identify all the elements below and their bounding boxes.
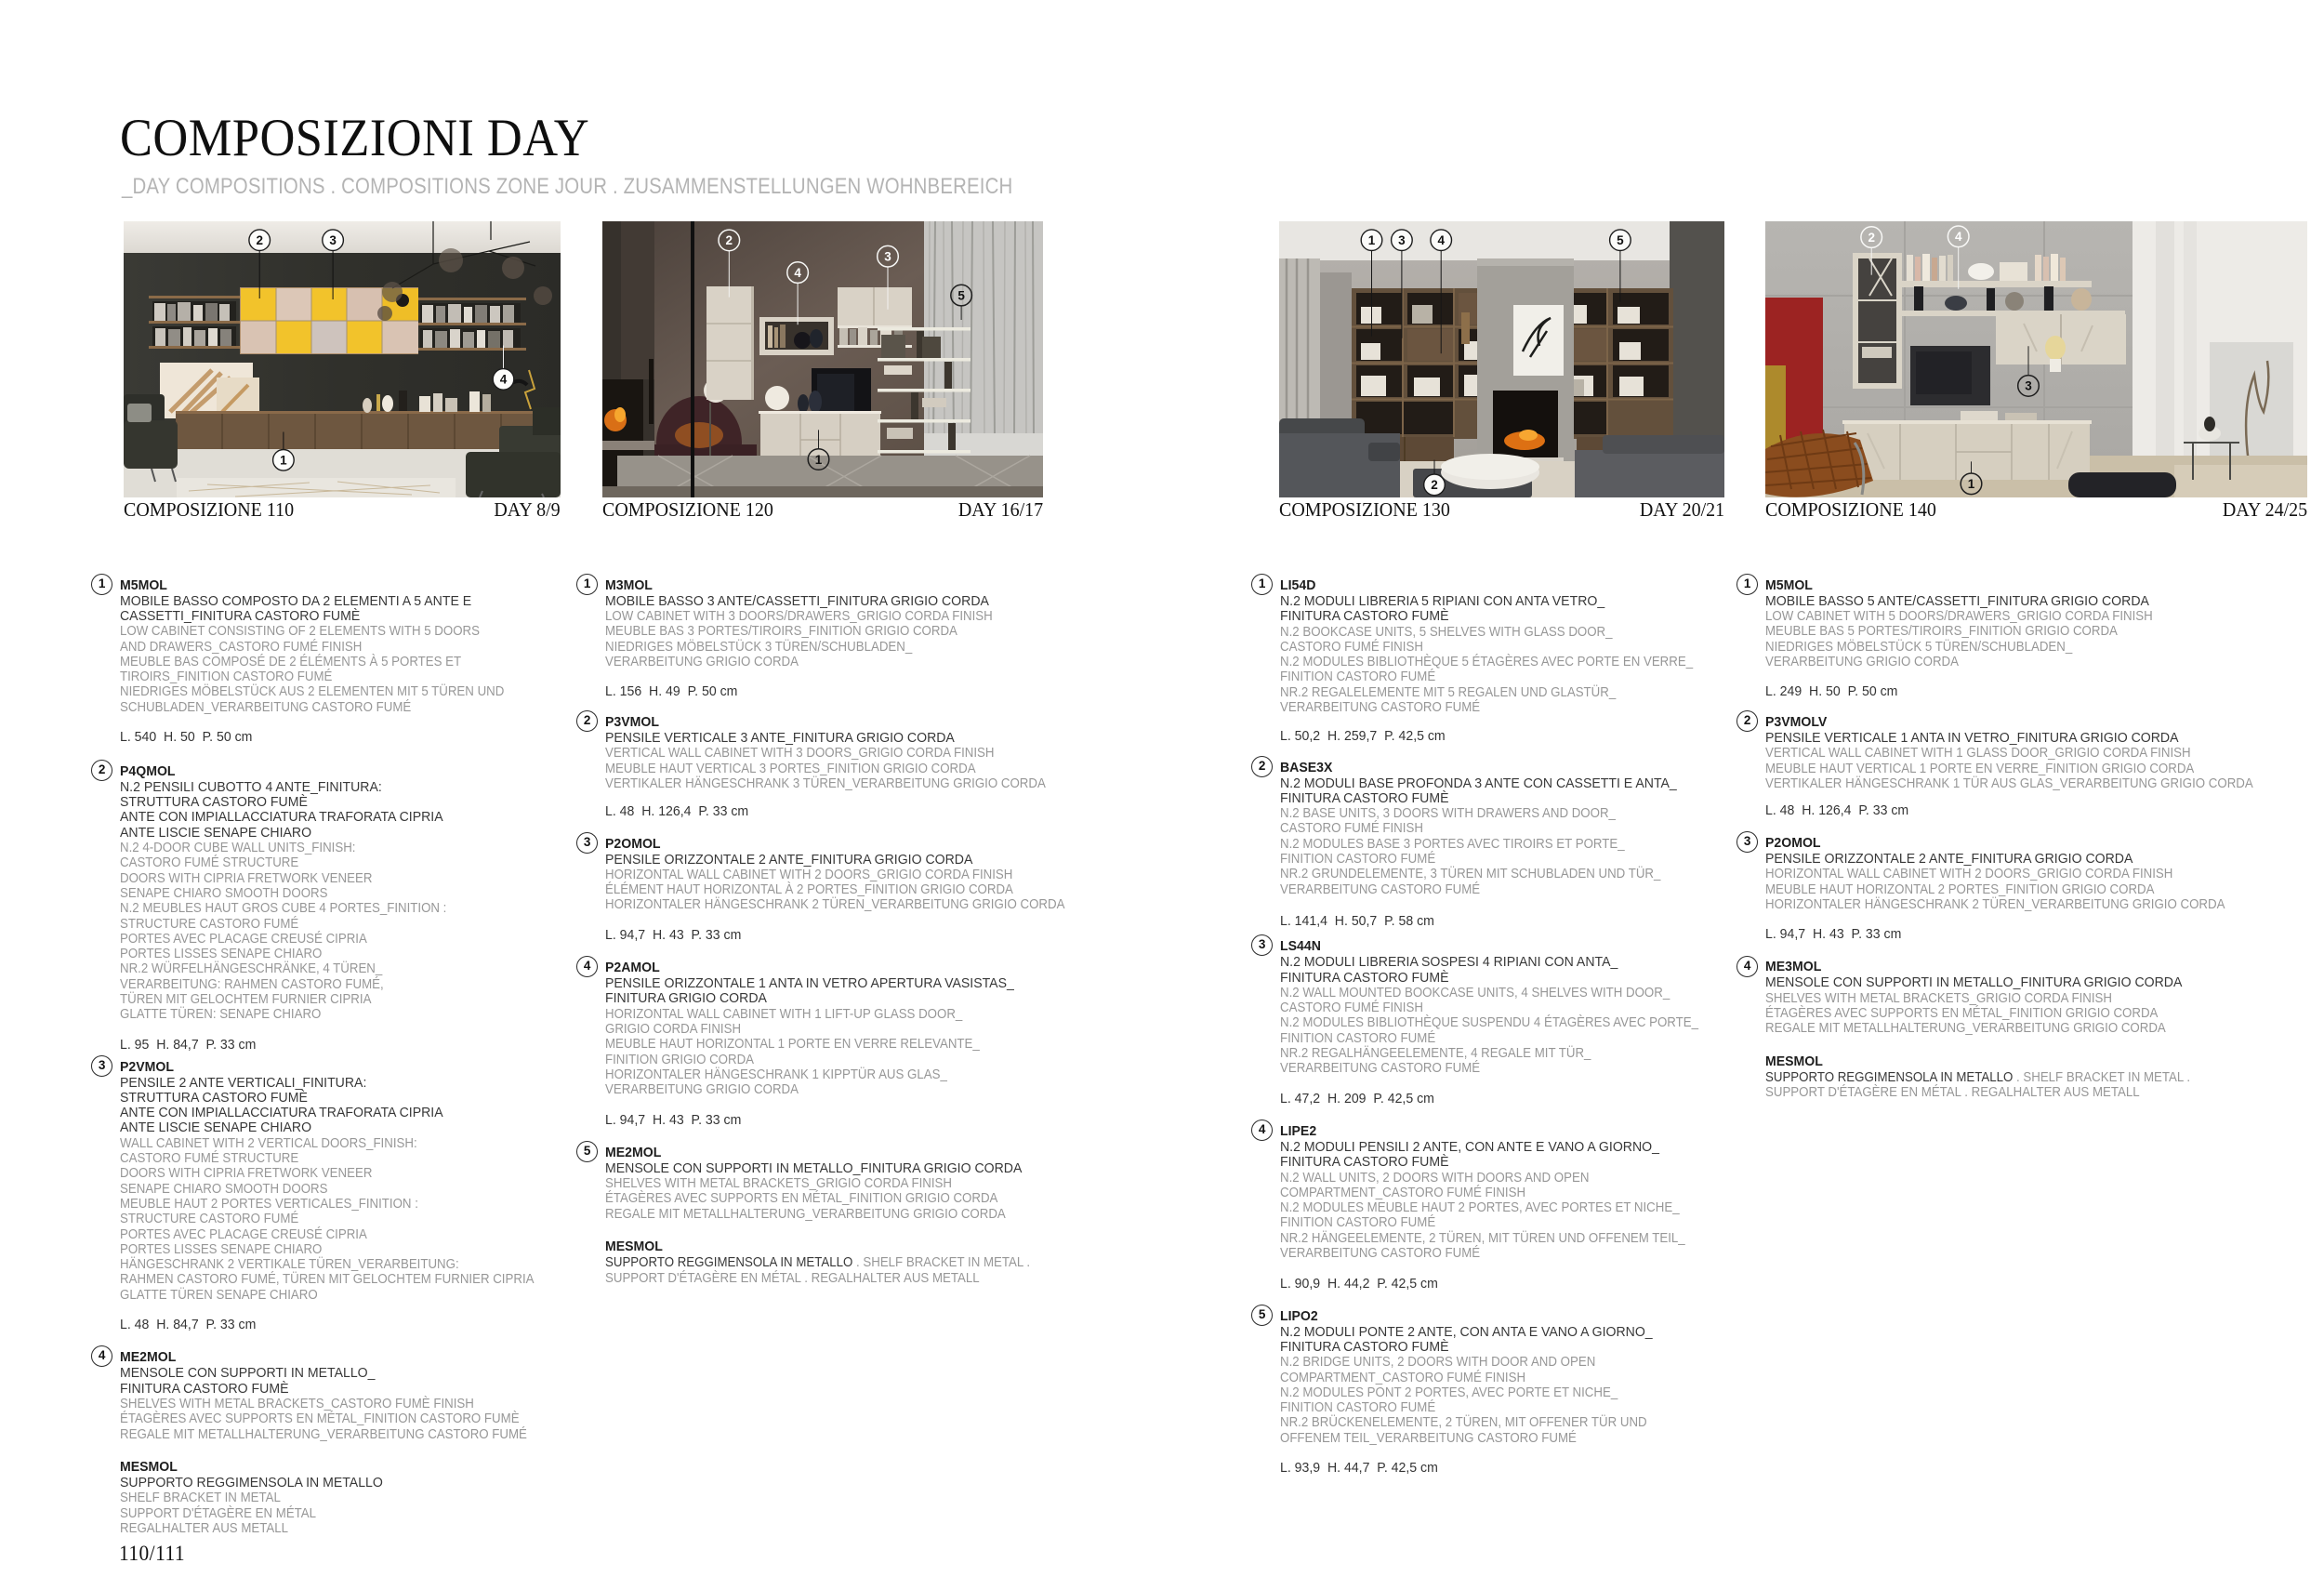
- svg-text:1: 1: [280, 454, 287, 468]
- svg-text:4: 4: [500, 373, 508, 387]
- svg-text:4: 4: [794, 266, 801, 280]
- svg-text:4: 4: [1437, 233, 1445, 247]
- svg-text:2: 2: [726, 233, 733, 247]
- svg-text:2: 2: [256, 233, 263, 247]
- svg-text:4: 4: [1955, 230, 1962, 244]
- svg-text:3: 3: [2025, 379, 2032, 393]
- svg-text:2: 2: [1431, 478, 1438, 492]
- svg-text:1: 1: [1368, 233, 1376, 247]
- svg-text:1: 1: [815, 453, 823, 467]
- svg-text:1: 1: [1968, 477, 1975, 491]
- svg-text:2: 2: [1868, 231, 1875, 245]
- svg-text:5: 5: [957, 288, 965, 302]
- svg-text:5: 5: [1617, 233, 1624, 247]
- svg-text:3: 3: [1398, 233, 1406, 247]
- svg-text:3: 3: [329, 233, 337, 247]
- svg-text:3: 3: [884, 250, 891, 264]
